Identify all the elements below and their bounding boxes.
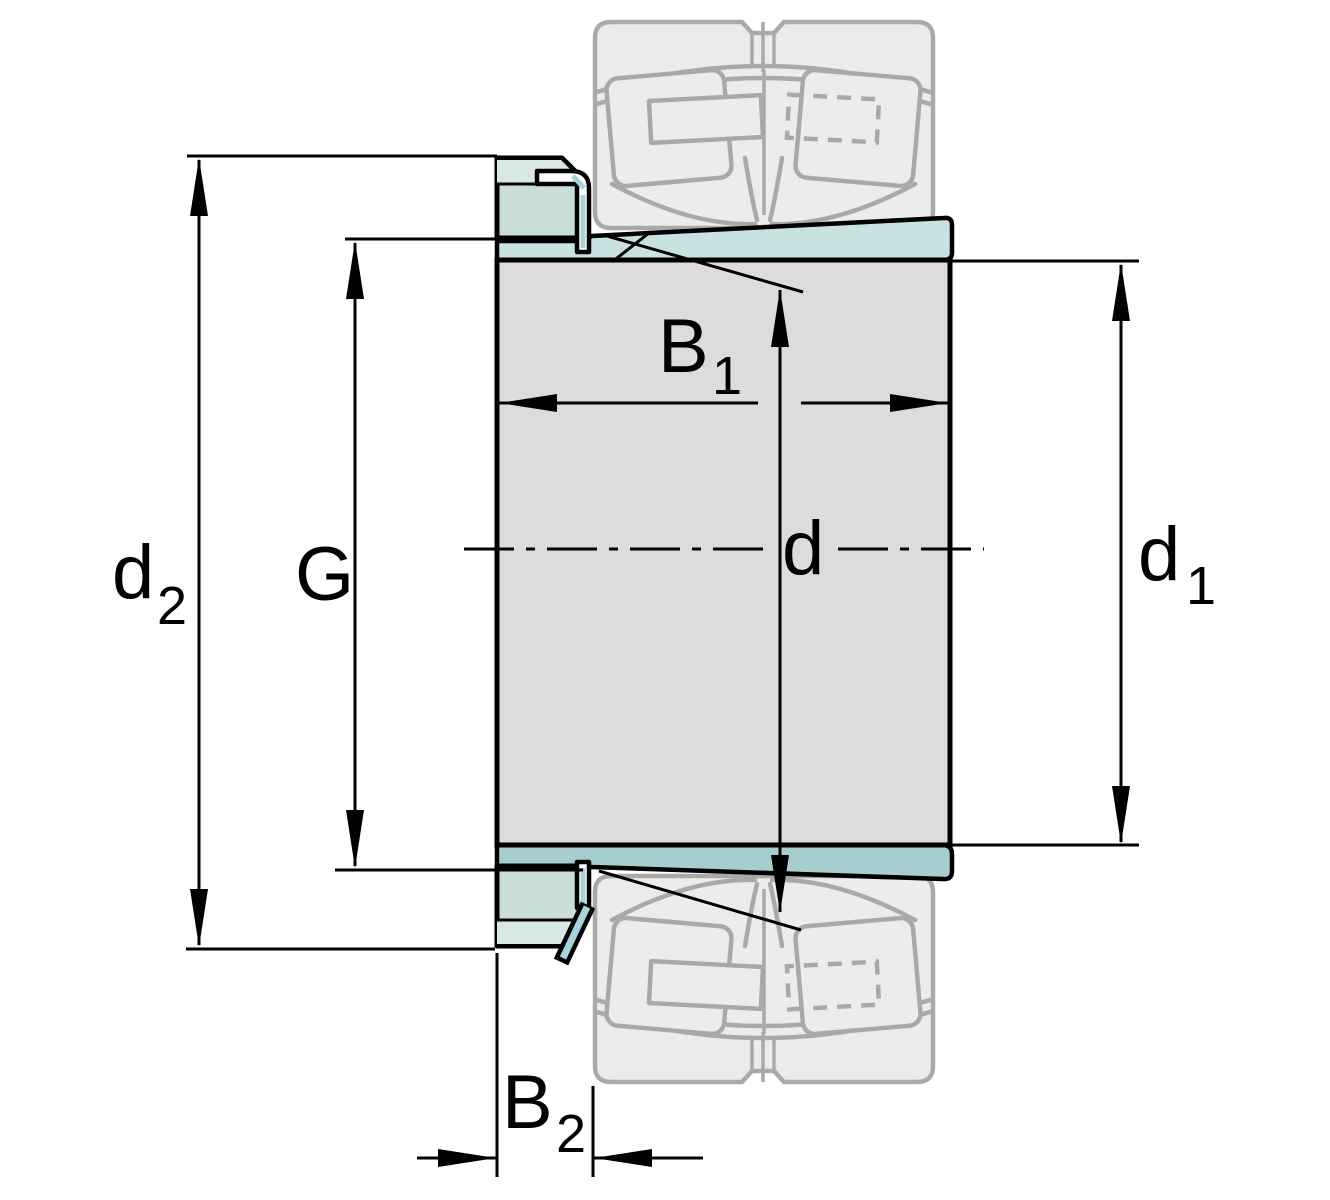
bearing-ghost-top bbox=[595, 22, 933, 228]
arrowhead-down-icon bbox=[1112, 786, 1130, 844]
arrowhead-down-icon bbox=[346, 810, 364, 868]
arrowhead-right-icon bbox=[438, 1149, 496, 1167]
dimension-d1 bbox=[951, 261, 1139, 845]
technical-drawing: d 2 G B 1 d d 1 B 2 bbox=[0, 0, 1330, 1200]
arrowhead-up-icon bbox=[190, 158, 208, 216]
roller-section-solid bbox=[649, 95, 763, 143]
label-b2-subscript: 2 bbox=[556, 1104, 586, 1164]
arrowhead-up-icon bbox=[346, 241, 364, 299]
label-g: G bbox=[295, 532, 354, 617]
roller-right bbox=[795, 69, 922, 187]
arrowhead-up-icon bbox=[1112, 263, 1130, 321]
label-d: d bbox=[782, 506, 824, 591]
roller-right bbox=[795, 917, 922, 1035]
arrowhead-left-icon bbox=[594, 1149, 652, 1167]
arrowhead-down-icon bbox=[190, 889, 208, 947]
label-d2-subscript: 2 bbox=[157, 576, 187, 636]
label-b2: B bbox=[502, 1060, 553, 1145]
label-d1-subscript: 1 bbox=[1186, 556, 1216, 616]
drawing-canvas: d 2 G B 1 d d 1 B 2 bbox=[0, 0, 1330, 1200]
label-d2: d bbox=[112, 530, 154, 615]
bearing-ghost-bottom bbox=[595, 876, 933, 1082]
label-b1-subscript: 1 bbox=[712, 346, 742, 406]
roller-section-solid bbox=[649, 961, 763, 1009]
label-b1: B bbox=[658, 304, 709, 389]
label-d1: d bbox=[1138, 512, 1180, 597]
